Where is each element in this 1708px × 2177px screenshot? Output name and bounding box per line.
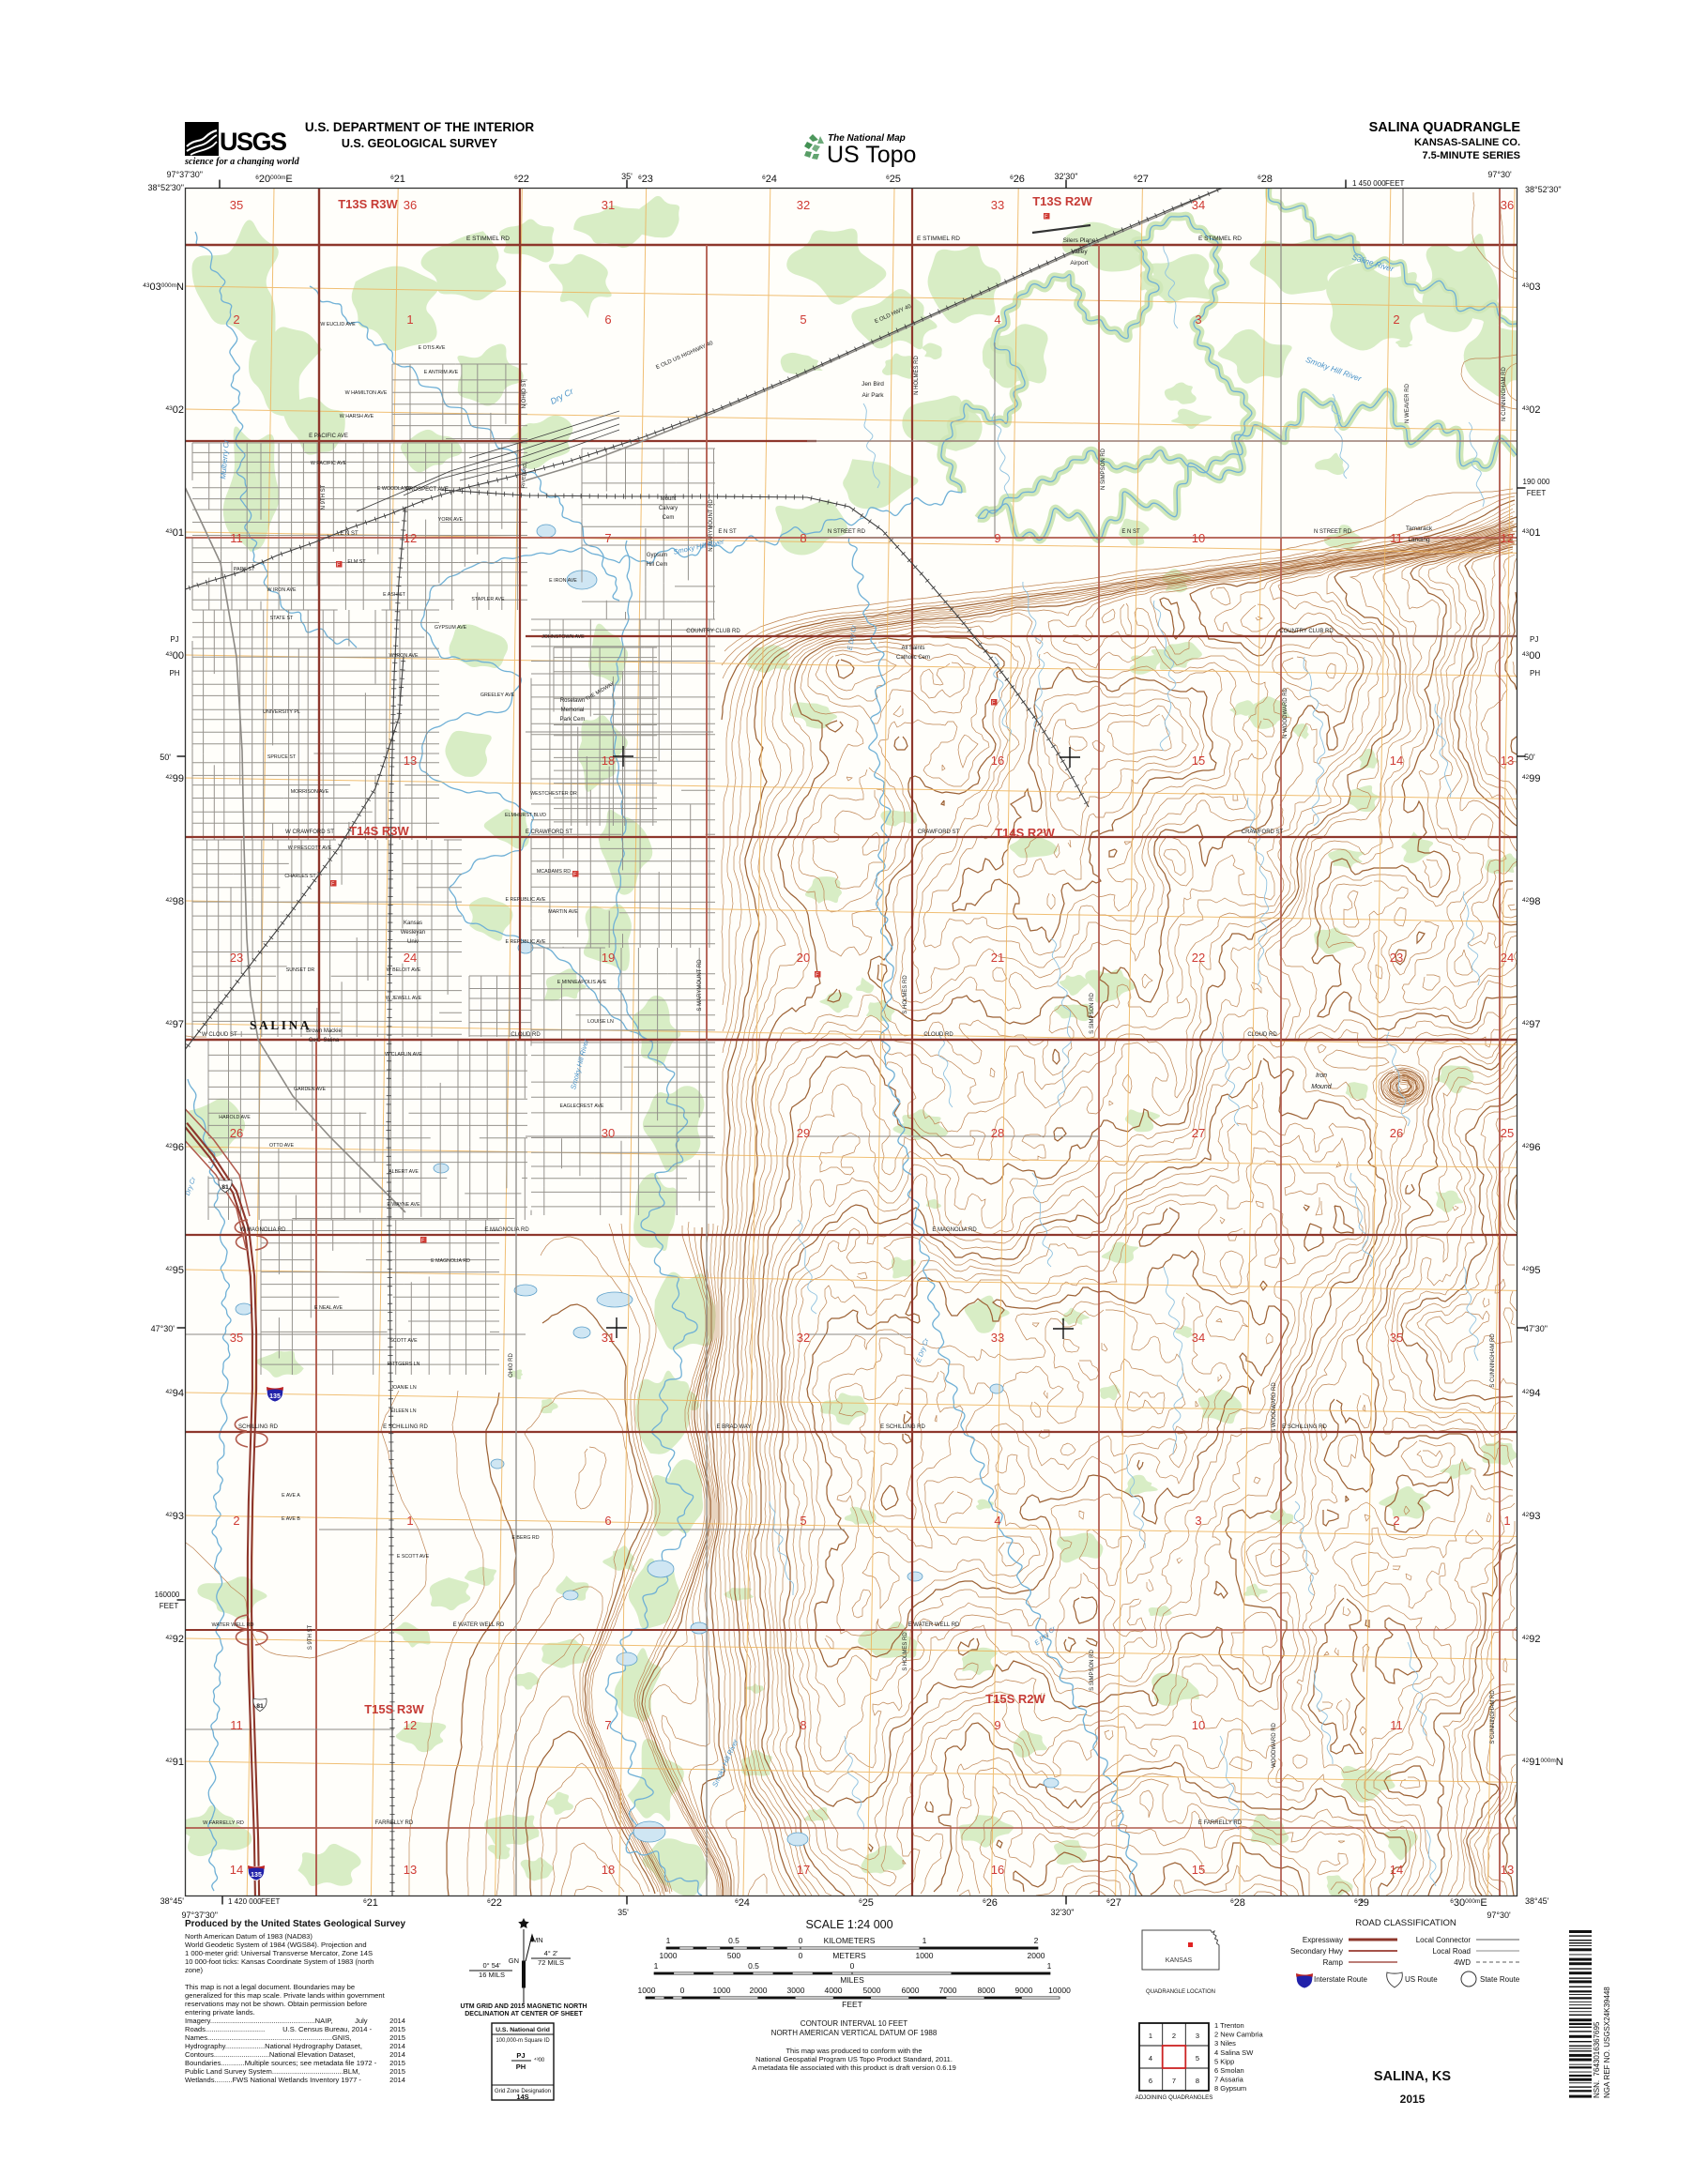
- svg-text:1000: 1000: [638, 1986, 656, 1995]
- svg-text:100,000-m Square ID: 100,000-m Square ID: [496, 2038, 550, 2044]
- svg-text:State Route: State Route: [1480, 1975, 1520, 1984]
- svg-text:ADJOINING QUADRANGLES: ADJOINING QUADRANGLES: [1136, 2094, 1213, 2101]
- svg-text:A metadata file associated wit: A metadata file associated with this pro…: [752, 2063, 956, 2072]
- svg-text:2: 2: [1034, 1936, 1039, 1945]
- svg-text:METERS: METERS: [832, 1951, 866, 1960]
- svg-text:PJ: PJ: [516, 2051, 525, 2060]
- svg-text:4WD: 4WD: [1454, 1958, 1471, 1967]
- svg-text:6: 6: [1149, 2077, 1152, 2085]
- svg-text:0° 54': 0° 54': [482, 1961, 501, 1970]
- svg-text:QUADRANGLE LOCATION: QUADRANGLE LOCATION: [1146, 1989, 1215, 1995]
- svg-text:KANSAS: KANSAS: [1166, 1957, 1193, 1964]
- svg-text:1000: 1000: [713, 1986, 731, 1995]
- svg-text:PH: PH: [516, 2063, 526, 2071]
- svg-text:1 Trenton: 1 Trenton: [1214, 2021, 1244, 2030]
- svg-text:SCALE 1:24 000: SCALE 1:24 000: [805, 1918, 892, 1931]
- svg-text:7000: 7000: [939, 1986, 957, 1995]
- svg-text:1: 1: [1047, 1961, 1052, 1971]
- svg-text:4000: 4000: [825, 1986, 843, 1995]
- svg-text:2000: 2000: [1028, 1951, 1045, 1960]
- svg-text:U.S. National Grid: U.S. National Grid: [496, 2027, 550, 2033]
- svg-text:9000: 9000: [1015, 1986, 1033, 1995]
- svg-text:1000: 1000: [660, 1951, 678, 1960]
- svg-text:3: 3: [1196, 2032, 1199, 2040]
- svg-text:2 New Cambria: 2 New Cambria: [1214, 2031, 1264, 2039]
- svg-text:4: 4: [1149, 2054, 1152, 2063]
- svg-text:5000: 5000: [863, 1986, 881, 1995]
- svg-text:3 Niles: 3 Niles: [1214, 2039, 1236, 2048]
- svg-text:Expressway: Expressway: [1303, 1936, 1343, 1944]
- svg-text:4° 2': 4° 2': [544, 1949, 558, 1957]
- svg-text:1: 1: [1149, 2032, 1152, 2040]
- svg-text:16 MILS: 16 MILS: [479, 1971, 505, 1979]
- svg-text:0: 0: [850, 1961, 855, 1971]
- svg-text:5: 5: [1196, 2054, 1199, 2063]
- svg-text:NGA REF NO. USGSX24K39448: NGA REF NO. USGSX24K39448: [1603, 1987, 1611, 2098]
- svg-text:5 Kipp: 5 Kipp: [1214, 2057, 1234, 2065]
- svg-text:0: 0: [799, 1951, 803, 1960]
- svg-text:KILOMETERS: KILOMETERS: [824, 1936, 876, 1945]
- svg-text:UTM GRID AND 2015 MAGNETIC NOR: UTM GRID AND 2015 MAGNETIC NORTH: [460, 2003, 587, 2010]
- svg-text:500: 500: [727, 1951, 740, 1960]
- svg-text:This map was produced to confo: This map was produced to conform with th…: [785, 2047, 922, 2055]
- svg-text:MILES: MILES: [840, 1975, 864, 1985]
- svg-text:7 Assaria: 7 Assaria: [1214, 2076, 1244, 2084]
- svg-text:0.5: 0.5: [728, 1936, 740, 1945]
- svg-text:MN: MN: [532, 1936, 543, 1944]
- svg-text:2000: 2000: [750, 1986, 768, 1995]
- svg-text:14S: 14S: [516, 2093, 528, 2101]
- svg-text:Local Connector: Local Connector: [1416, 1936, 1472, 1944]
- svg-text:2: 2: [1172, 2032, 1176, 2040]
- svg-text:Local Road: Local Road: [1433, 1947, 1471, 1956]
- svg-text:4 Salina SW: 4 Salina SW: [1214, 2048, 1254, 2057]
- svg-text:6 Smolan: 6 Smolan: [1214, 2066, 1244, 2075]
- svg-text:US Route: US Route: [1405, 1975, 1438, 1984]
- svg-text:1: 1: [666, 1936, 671, 1945]
- svg-text:1: 1: [654, 1961, 659, 1971]
- svg-text:Interstate Route: Interstate Route: [1314, 1975, 1367, 1984]
- svg-text:NORTH AMERICAN VERTICAL DATUM: NORTH AMERICAN VERTICAL DATUM OF 1988: [771, 2029, 938, 2037]
- svg-text:⁴³00: ⁴³00: [534, 2057, 545, 2063]
- svg-text:SALINA, KS: SALINA, KS: [1374, 2069, 1452, 2084]
- svg-text:8: 8: [1196, 2077, 1199, 2085]
- svg-text:6000: 6000: [902, 1986, 920, 1995]
- svg-text:DECLINATION AT CENTER OF SHEET: DECLINATION AT CENTER OF SHEET: [465, 2011, 583, 2017]
- svg-text:0.5: 0.5: [748, 1961, 759, 1971]
- svg-text:0: 0: [799, 1936, 803, 1945]
- svg-text:10000: 10000: [1048, 1986, 1071, 1995]
- svg-text:2015: 2015: [1400, 2093, 1426, 2106]
- svg-text:3000: 3000: [787, 1986, 805, 1995]
- svg-text:1: 1: [923, 1936, 927, 1945]
- svg-text:Secondary Hwy: Secondary Hwy: [1290, 1947, 1343, 1956]
- svg-text:1000: 1000: [916, 1951, 934, 1960]
- svg-text:ROAD CLASSIFICATION: ROAD CLASSIFICATION: [1355, 1918, 1456, 1928]
- svg-text:8000: 8000: [978, 1986, 996, 1995]
- svg-text:0: 0: [680, 1986, 685, 1995]
- svg-text:Ramp: Ramp: [1323, 1958, 1344, 1967]
- svg-text:8 Gypsum: 8 Gypsum: [1214, 2084, 1246, 2093]
- svg-text:NSN. 7643016367695: NSN. 7643016367695: [1593, 2021, 1601, 2098]
- svg-text:7: 7: [1172, 2077, 1176, 2085]
- svg-text:FEET: FEET: [842, 2000, 862, 2009]
- svg-text:CONTOUR INTERVAL 10 FEET: CONTOUR INTERVAL 10 FEET: [801, 2019, 908, 2028]
- svg-text:GN: GN: [509, 1956, 519, 1965]
- svg-text:72 MILS: 72 MILS: [538, 1958, 564, 1967]
- svg-text:National Geospatial Program US: National Geospatial Program US Topo Prod…: [755, 2055, 953, 2063]
